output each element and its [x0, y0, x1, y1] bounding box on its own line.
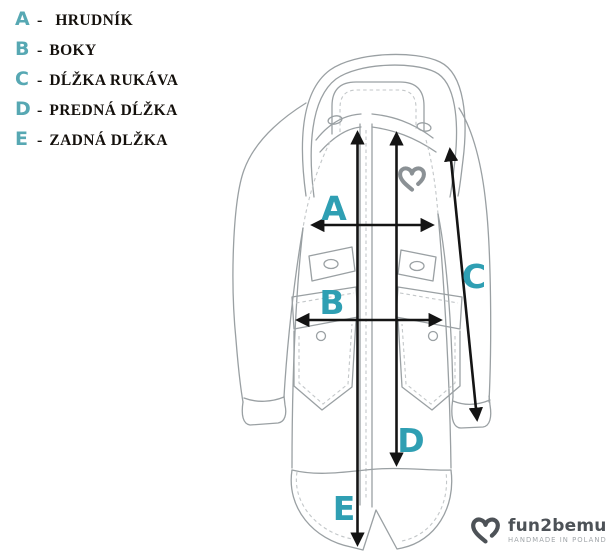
- pocket-left: [294, 319, 356, 410]
- right-cuff: [452, 396, 491, 428]
- chest-flap-right-button: [410, 262, 424, 271]
- measurement-labels: A B C D E: [319, 189, 486, 528]
- diagram-label-a: A: [321, 189, 347, 228]
- chest-flap-left-button: [324, 260, 338, 269]
- brand-tagline: HANDMADE IN POLAND: [508, 537, 606, 544]
- coat-outline: [233, 54, 491, 550]
- diagram-label-c: C: [462, 257, 486, 296]
- fun2bemum-heart-icon: [470, 516, 501, 545]
- pocket-button-left: [317, 332, 326, 341]
- size-chart-diagram: A-HRUDNÍK B-BOKY C-DĹŽKA RUKÁVA D-PREDNÁ…: [0, 0, 606, 553]
- chest-flap-right: [398, 250, 436, 281]
- coat-diagram: A B C D E: [0, 0, 606, 553]
- left-cuff: [242, 396, 285, 425]
- brand-text: fun2bemum HANDMADE IN POLAND: [508, 518, 606, 544]
- diagram-label-b: B: [319, 283, 344, 322]
- chest-flap-left: [309, 247, 355, 281]
- fun2bemum-heart-icon: [400, 168, 424, 189]
- collar-bottom: [320, 127, 436, 152]
- left-sleeve-outer: [233, 103, 306, 402]
- brand-name: fun2bemum: [508, 518, 606, 535]
- brand-logo: fun2bemum HANDMADE IN POLAND: [470, 516, 606, 545]
- diagram-label-e: E: [333, 489, 356, 528]
- hood-inner-rim: [311, 65, 456, 197]
- diagram-label-d: D: [397, 421, 424, 460]
- pocket-button-right: [429, 332, 438, 341]
- pocket-flap-right: [396, 287, 462, 329]
- right-raglan-seam: [426, 140, 438, 214]
- hood-opening-stitch: [340, 90, 416, 132]
